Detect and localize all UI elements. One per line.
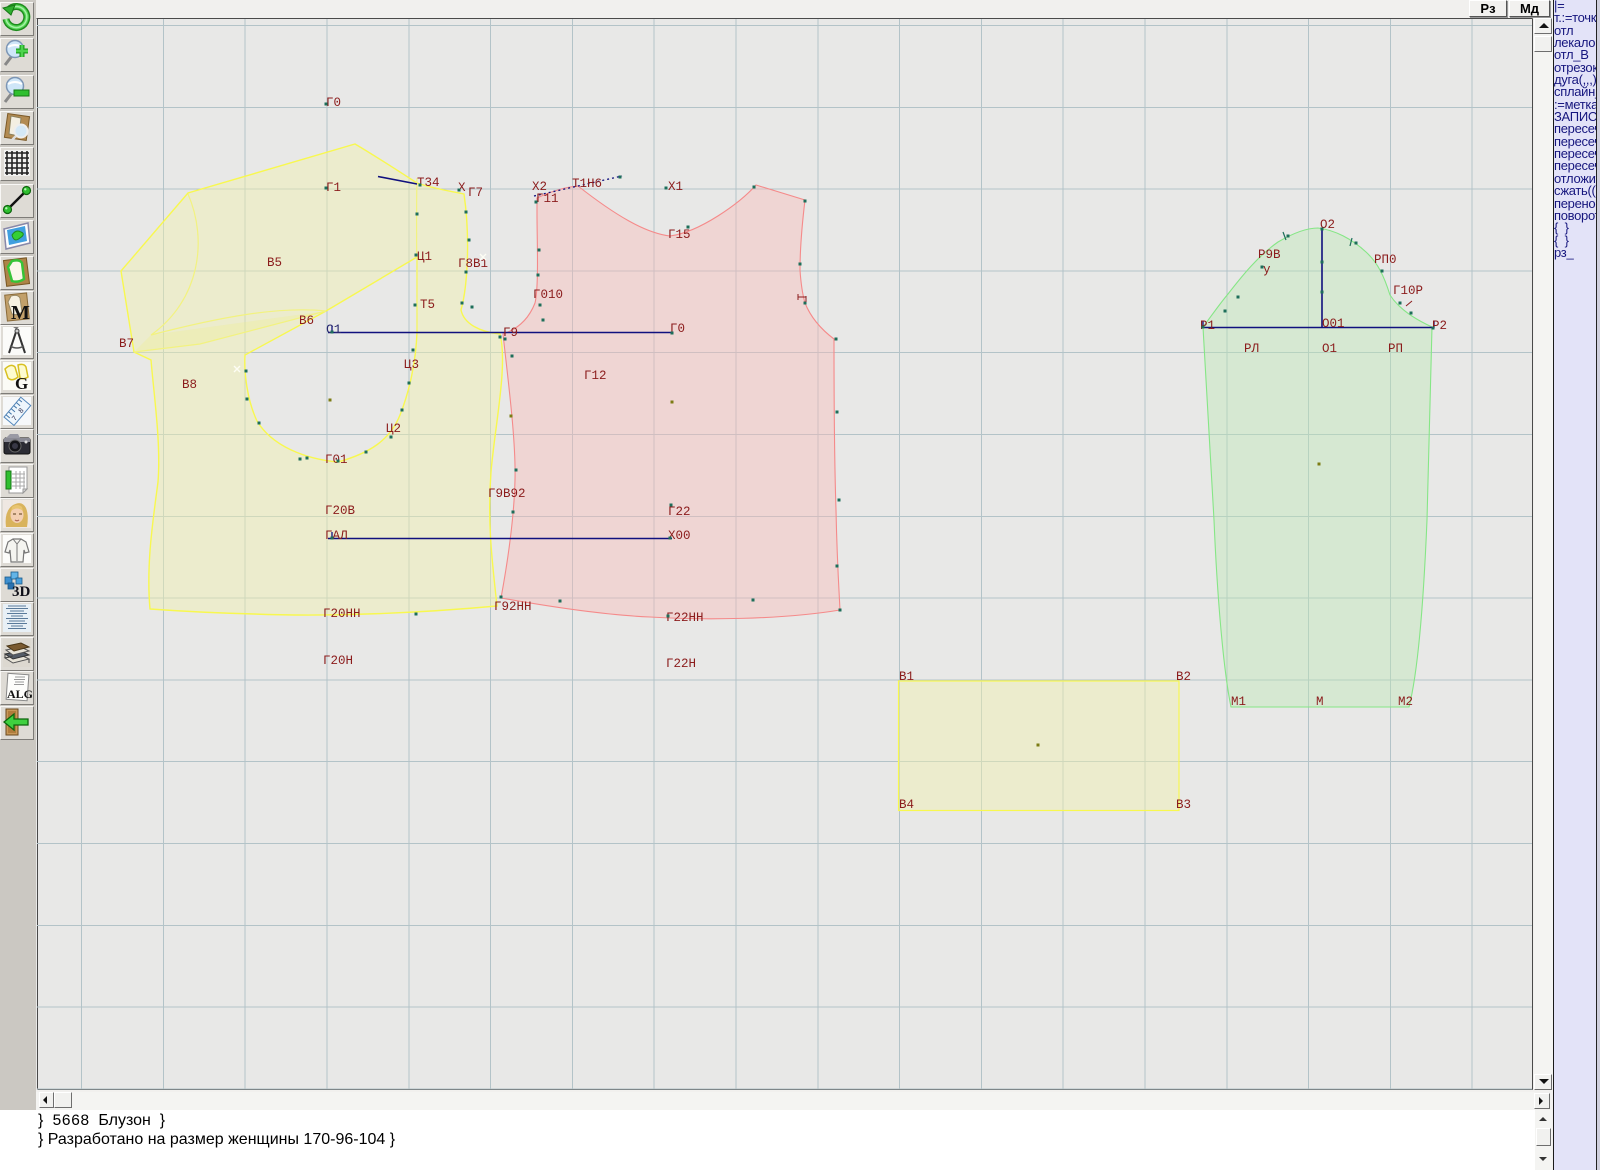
svg-text:В6: В6 [299, 314, 314, 328]
svg-text:Х1: Х1 [668, 180, 683, 194]
svg-text:В8: В8 [182, 378, 197, 392]
svg-text:Ц2: Ц2 [386, 422, 401, 436]
svg-text:Г22НН: Г22НН [666, 611, 704, 625]
svg-text:В5: В5 [267, 256, 282, 270]
svg-text:М1: М1 [1231, 695, 1246, 709]
svg-text:ГАЛ: ГАЛ [325, 529, 348, 543]
svg-text:Г10Р: Г10Р [1393, 284, 1423, 298]
svg-text:Т1Н6: Т1Н6 [572, 177, 602, 191]
svg-text:Г12: Г12 [584, 369, 607, 383]
svg-text:Г1: Г1 [326, 181, 341, 195]
svg-text:M: M [11, 302, 30, 322]
svg-text:В1: В1 [899, 670, 914, 684]
svg-text:М: М [1316, 695, 1324, 709]
svg-text:Г01: Г01 [325, 453, 348, 467]
svg-text:Г010: Г010 [533, 288, 563, 302]
svg-text:Г20НН: Г20НН [323, 607, 361, 621]
svg-text:Х00: Х00 [668, 529, 691, 543]
svg-text:Ц1: Ц1 [417, 250, 432, 264]
svg-text:Ц3: Ц3 [404, 358, 419, 372]
svg-text:Х: Х [458, 181, 466, 195]
svg-text:Г20Н: Г20Н [323, 654, 353, 668]
svg-text:Г11: Г11 [536, 192, 559, 206]
svg-text:Р2: Р2 [1432, 319, 1447, 333]
svg-text:Т5: Т5 [420, 298, 435, 312]
svg-text:О1: О1 [1322, 342, 1337, 356]
svg-text:Г15: Г15 [668, 228, 691, 242]
svg-text:В2: В2 [1176, 670, 1191, 684]
svg-text:Г20В: Г20В [325, 504, 356, 518]
svg-text:В7: В7 [119, 337, 134, 351]
svg-text:G: G [15, 374, 28, 391]
svg-text:РЛ: РЛ [1244, 342, 1259, 356]
svg-text:О01: О01 [1322, 317, 1345, 331]
svg-text:Г22: Г22 [668, 505, 691, 519]
svg-text:3D: 3D [12, 584, 31, 599]
svg-text:Т34: Т34 [417, 176, 440, 190]
svg-text:РП0: РП0 [1374, 253, 1397, 267]
svg-text:Г9В92: Г9В92 [488, 487, 526, 501]
svg-text:С1: С1 [326, 322, 342, 337]
svg-text:Р9В: Р9В [1258, 248, 1281, 262]
svg-text:Г22Н: Г22Н [666, 657, 696, 671]
svg-text:Г7: Г7 [468, 186, 483, 200]
svg-text:В4: В4 [899, 798, 914, 812]
svg-text:М2: М2 [1398, 695, 1413, 709]
svg-text:РП: РП [1388, 342, 1403, 356]
svg-text:у: у [1263, 263, 1271, 277]
svg-text:Г0: Г0 [326, 96, 341, 110]
svg-text:В3: В3 [1176, 798, 1191, 812]
svg-text:ALG: ALG [7, 687, 32, 701]
svg-text:Г92НН: Г92НН [494, 600, 532, 614]
svg-text:Г8В1: Г8В1 [458, 257, 488, 271]
